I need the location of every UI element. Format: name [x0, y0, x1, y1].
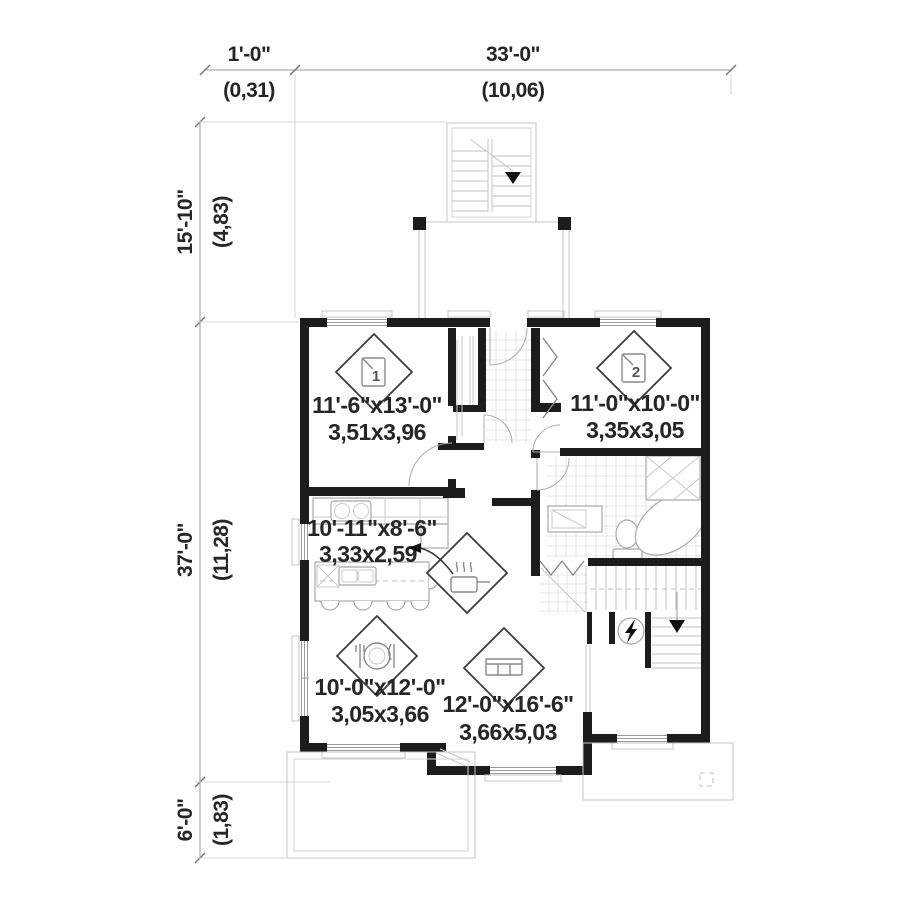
wall-right — [701, 318, 710, 743]
dim-top-offset-feet: 1'-0" — [228, 43, 271, 66]
window-living-bay — [490, 768, 556, 774]
stair-upper-flight-treads — [596, 566, 696, 610]
floor-plan-canvas: 1'-0" (0,31) 33'-0" (10,06) 15'-10" (4,8… — [0, 0, 900, 900]
window-sill — [595, 311, 661, 317]
rear-patio-right — [583, 743, 733, 800]
dim-left-1-feet: 15'-10" — [174, 189, 197, 254]
toilet-bowl — [616, 520, 638, 548]
interior-stairs — [586, 566, 701, 668]
floor-plan-page: 1'-0" (0,31) 33'-0" (10,06) 15'-10" (4,8… — [0, 0, 900, 900]
window-sill — [292, 519, 299, 565]
exterior-entry-stairs — [447, 123, 536, 222]
dim-top-width-meters: (10,06) — [481, 79, 544, 102]
stair-treads-left — [452, 151, 488, 211]
wall-hall-stub — [453, 405, 486, 412]
window-sill — [485, 775, 561, 781]
patio-marker — [700, 773, 713, 786]
dim-left-3-meters: (1,83) — [210, 794, 233, 846]
porch-post — [558, 217, 571, 230]
window-sill — [292, 636, 299, 721]
room-size-imperial: 10'-11"x8'-6" — [307, 515, 437, 541]
window-bedroom1 — [327, 320, 387, 326]
room-size-metric: 3,66x5,03 — [459, 719, 557, 745]
stair-stringer — [488, 139, 492, 212]
window-sill — [322, 752, 405, 758]
entry-door-swing — [490, 328, 527, 365]
room-size-imperial: 11'-6"x13'-0" — [312, 392, 442, 418]
stair-newel-walls — [587, 612, 651, 668]
room-size-metric: 3,05x3,66 — [331, 701, 429, 727]
room-label-living: 12'-0"x16'-6" 3,66x5,03 — [442, 628, 573, 745]
wall-vestibule-bottom — [443, 488, 532, 506]
wall-bathroom-bottom — [588, 558, 701, 566]
dim-top-width-feet: 33'-0" — [486, 43, 540, 66]
room-size-imperial: 11'-0"x10'-0" — [570, 390, 700, 416]
room-number: 1 — [372, 368, 380, 385]
wall-closet2-bottom — [531, 403, 561, 412]
room-size-metric: 3,35x3,05 — [586, 417, 685, 443]
stair-half-wall — [586, 645, 590, 712]
dim-left-2-meters: (11,28) — [210, 519, 233, 581]
room-label-bedroom-2: 2 11'-0"x10'-0" 3,35x3,05 — [570, 331, 700, 443]
window-dining-bottom — [327, 745, 400, 751]
porch-rails — [419, 222, 569, 318]
door-sidelight-sill — [528, 311, 564, 317]
hall-door-swing — [484, 415, 512, 443]
window-living-right — [617, 736, 667, 742]
toilet-tank — [613, 549, 642, 559]
dim-left-1-meters: (4,83) — [210, 196, 233, 248]
room-size-metric: 3,51x3,96 — [328, 419, 426, 445]
dim-left-3-feet: 6'-0" — [174, 799, 197, 842]
door-hinge-stub — [531, 450, 540, 458]
front-porch — [413, 217, 571, 318]
bathroom-fixtures — [548, 456, 718, 568]
window-sill — [322, 311, 392, 317]
wall-bathroom-left — [531, 490, 540, 576]
room-size-imperial: 12'-0"x16'-6" — [442, 691, 573, 717]
room-label-dining: 10'-0"x12'-0" 3,05x3,66 — [314, 616, 445, 727]
dim-top-offset-meters: (0,31) — [223, 79, 275, 102]
window-bedroom2 — [600, 320, 656, 326]
wall-entry-right — [531, 328, 540, 412]
wall-bedroom1-right — [448, 328, 456, 406]
window-dining-left — [301, 641, 309, 716]
room-size-metric: 3,33x2,59 — [319, 541, 417, 567]
island-stools — [321, 601, 429, 610]
room-size-imperial: 10'-0"x12'-0" — [314, 674, 445, 700]
window-sill — [612, 743, 673, 749]
bedroom2-door-swing — [533, 425, 560, 452]
entry-tile-grid — [486, 330, 531, 443]
porch-post — [413, 217, 426, 230]
wall-entry-closet — [478, 328, 486, 412]
wall-bedroom2-bottom — [560, 448, 701, 456]
wall-bedroom1-bottom — [300, 487, 456, 496]
entry-stairs-down-arrow — [505, 172, 521, 184]
dim-left-2-feet: 37'-0" — [174, 523, 197, 577]
entry-closet-sliding-doors — [470, 336, 473, 405]
door-sidelight-sill — [448, 311, 490, 317]
bathroom-door-swing — [537, 458, 569, 490]
patio-outline — [583, 743, 733, 800]
bedroom1-closet-sliding-doors — [457, 336, 462, 440]
room-number: 2 — [632, 364, 640, 381]
room-label-bedroom-1: 1 11'-6"x13'-0" 3,51x3,96 — [312, 334, 442, 445]
